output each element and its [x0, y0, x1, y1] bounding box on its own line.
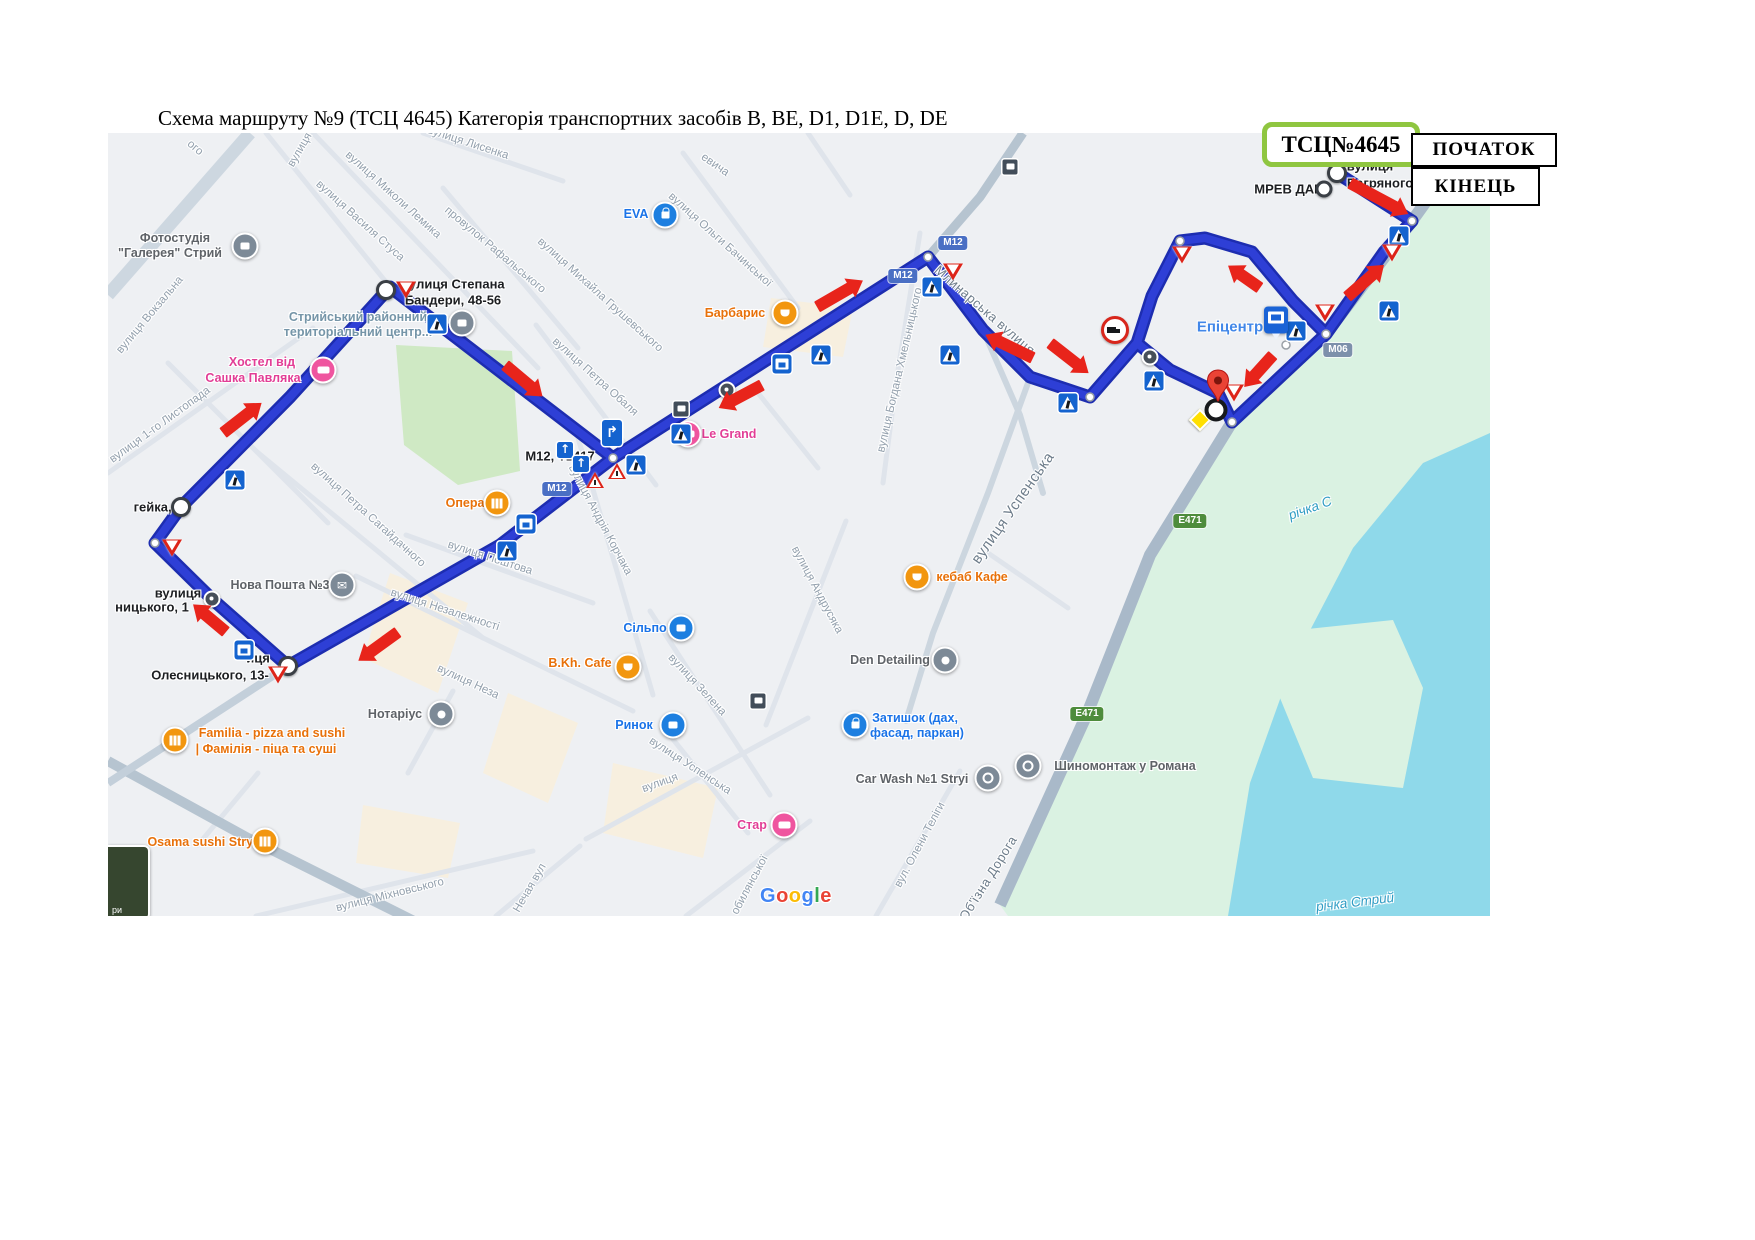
poi-label: EVA	[624, 207, 649, 221]
opera-restaurant-icon[interactable]	[484, 490, 511, 517]
waypoint-label: вулиця Степана	[401, 277, 504, 292]
yield-sign-icon	[268, 667, 288, 684]
road-shield-e471: E471	[1173, 514, 1206, 528]
poi-label: Стар	[737, 818, 767, 832]
waypoint-label: Бандери, 48-56	[405, 293, 501, 308]
traffic-light-warning-icon	[608, 463, 626, 479]
tire-service-icon[interactable]	[1015, 753, 1042, 780]
crosswalk-sign-icon	[1059, 394, 1078, 413]
crosswalk-sign-icon	[1380, 302, 1399, 321]
transit-stop-icon	[674, 402, 689, 417]
waypoint-circle	[171, 497, 191, 517]
yield-sign-icon	[1172, 247, 1192, 264]
poi-label: Опера	[446, 496, 485, 510]
poi-label: Барбарис	[705, 306, 766, 320]
waypoint-label: МРЕВ ДАІ	[1254, 182, 1317, 197]
rynok-market-icon[interactable]	[660, 712, 687, 739]
poi-label: Затишок (дах,	[872, 711, 958, 725]
waypoint-circle	[1316, 181, 1333, 198]
barbarys-cafe-icon[interactable]	[772, 300, 799, 327]
road-shield-m06: M06	[1323, 343, 1352, 357]
road-shield-m12: М12	[938, 236, 967, 250]
silpo-store-icon[interactable]	[668, 615, 695, 642]
road-shield-m12: М12	[888, 269, 917, 283]
poi-label: Хостел від	[229, 355, 295, 369]
road-shield-m12: М12	[542, 482, 571, 496]
poi-label: Шиномонтаж у Романа	[1054, 759, 1195, 773]
car-wash-icon[interactable]	[975, 765, 1002, 792]
crosswalk-sign-icon	[1287, 322, 1306, 341]
notary-icon[interactable]	[428, 701, 455, 728]
poi-label: Osama sushi Stryi	[147, 835, 256, 849]
end-legend-box: КІНЕЦЬ	[1411, 167, 1540, 206]
transit-stop-icon	[1003, 160, 1018, 175]
poi-label: "Галерея" Стрий	[118, 246, 222, 260]
poi-label: Стрийський районний	[289, 310, 427, 324]
waypoint-label: ницького, 1	[115, 600, 189, 615]
star-hotel-icon[interactable]	[771, 812, 798, 839]
no-trucks-sign-icon	[1101, 316, 1129, 344]
google-logo[interactable]: Google	[760, 885, 832, 908]
kebab-cafe-icon[interactable]	[904, 564, 931, 591]
poi-label: територіальний центр...	[284, 325, 432, 339]
crosswalk-sign-icon	[498, 542, 517, 561]
page: { "title": "Схема маршруту №9 (ТСЦ 4645)…	[0, 0, 1755, 1240]
waypoint-label: Олесницького, 13-	[151, 668, 269, 683]
crosswalk-sign-icon	[923, 278, 942, 297]
crosswalk-sign-icon	[812, 346, 831, 365]
crosswalk-sign-icon	[428, 315, 447, 334]
poi-label: Car Wash №1 Stryi	[856, 772, 969, 786]
photo-studio-icon[interactable]	[232, 233, 259, 260]
yield-sign-icon	[162, 540, 182, 557]
crosswalk-sign-icon	[941, 346, 960, 365]
poi-label: Le Grand	[702, 427, 757, 441]
poi-label: Сільпо	[623, 621, 666, 635]
bus-station-flag-icon	[1264, 307, 1288, 334]
zatyshok-icon[interactable]	[842, 712, 869, 739]
territorial-center-icon[interactable]	[449, 310, 476, 337]
poi-label: Епіцентр	[1197, 319, 1263, 336]
crosswalk-sign-icon	[627, 456, 646, 475]
crosswalk-sign-icon	[672, 425, 691, 444]
poi-label: Сашка Павляка	[205, 371, 300, 385]
mandatory-direction-sign-icon	[557, 442, 573, 458]
traffic-light-warning-icon	[586, 472, 604, 488]
page-title: Схема маршруту №9 (ТСЦ 4645) Категорія т…	[158, 106, 948, 131]
crosswalk-sign-icon	[226, 471, 245, 490]
start-legend-box: ПОЧАТОК	[1411, 133, 1557, 167]
poi-label: Ринок	[615, 718, 652, 732]
bus-stop-sign-icon	[773, 355, 792, 374]
bus-stop-sign-icon	[517, 515, 536, 534]
map-canvas[interactable]: М12 М12 М12 M06 E471 E471 вулиця Вокзаль…	[108, 133, 1490, 916]
mandatory-direction-sign-icon	[573, 456, 589, 472]
poi-label: B.Kh. Cafe	[548, 656, 611, 670]
den-detailing-icon[interactable]	[932, 647, 959, 674]
destination-pin-icon[interactable]	[1206, 369, 1230, 403]
waypoint-circle	[376, 280, 396, 300]
poi-label: Фотостудія	[140, 231, 210, 245]
map-base-layer	[108, 133, 1490, 916]
nova-poshta-icon[interactable]: ✉	[329, 572, 356, 599]
poi-label: фасад, паркан)	[870, 726, 964, 740]
yield-sign-icon	[1382, 245, 1402, 262]
satellite-layer-toggle[interactable]: ри	[108, 845, 150, 916]
poi-label: Нотаріус	[368, 707, 422, 721]
familia-restaurant-icon[interactable]	[162, 727, 189, 754]
bkh-cafe-icon[interactable]	[615, 654, 642, 681]
hostel-icon[interactable]	[310, 357, 337, 384]
bus-stop-sign-icon	[235, 641, 254, 660]
mandatory-direction-sign-icon	[602, 420, 622, 446]
poi-label: Нова Пошта №3	[230, 578, 329, 592]
poi-label: кебаб Кафе	[936, 570, 1007, 584]
poi-label: | Фамілія - піца та суші	[196, 742, 337, 756]
waypoint-label: вулиця	[155, 586, 202, 601]
crosswalk-sign-icon	[1145, 372, 1164, 391]
poi-label: Familia - pizza and sushi	[199, 726, 346, 740]
yield-sign-icon	[943, 264, 963, 281]
crosswalk-sign-icon	[1390, 227, 1409, 246]
osama-sushi-icon[interactable]	[252, 828, 279, 855]
waypoint-dot	[1142, 349, 1159, 366]
yield-sign-icon	[396, 282, 416, 299]
tsc-legend-box: ТСЦ№4645	[1262, 122, 1420, 167]
yield-sign-icon	[1315, 305, 1335, 322]
transit-stop-icon	[751, 694, 766, 709]
road-shield-e471: E471	[1070, 707, 1103, 721]
poi-label: Den Detailing	[850, 653, 930, 667]
eva-store-icon[interactable]	[652, 202, 679, 229]
